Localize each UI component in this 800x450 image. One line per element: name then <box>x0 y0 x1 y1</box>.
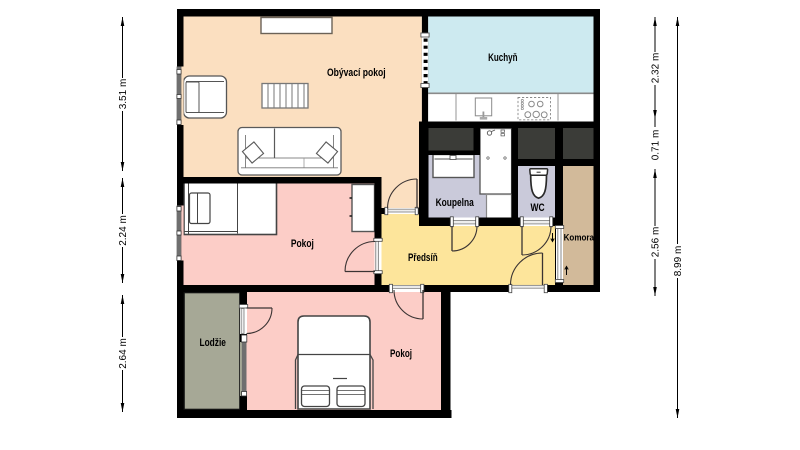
svg-text:Předsíň: Předsíň <box>408 252 438 264</box>
svg-text:8.99 m: 8.99 m <box>673 246 684 277</box>
svg-text:0.71 m: 0.71 m <box>651 130 662 161</box>
svg-text:Kuchyň: Kuchyň <box>488 52 518 64</box>
svg-text:2.56 m: 2.56 m <box>651 227 662 258</box>
svg-text:Koupelna: Koupelna <box>436 197 475 209</box>
svg-text:3.51 m: 3.51 m <box>118 79 129 110</box>
svg-text:Lodžie: Lodžie <box>200 337 226 349</box>
svg-text:2.32 m: 2.32 m <box>651 53 662 84</box>
svg-text:WC: WC <box>531 202 545 214</box>
svg-text:Pokoj: Pokoj <box>291 238 314 250</box>
svg-text:Pokoj: Pokoj <box>390 348 412 360</box>
svg-text:2.64 m: 2.64 m <box>118 338 129 369</box>
svg-text:2.24 m: 2.24 m <box>118 215 129 246</box>
svg-text:Komora: Komora <box>564 232 595 243</box>
svg-text:Obývací pokoj: Obývací pokoj <box>327 67 386 79</box>
